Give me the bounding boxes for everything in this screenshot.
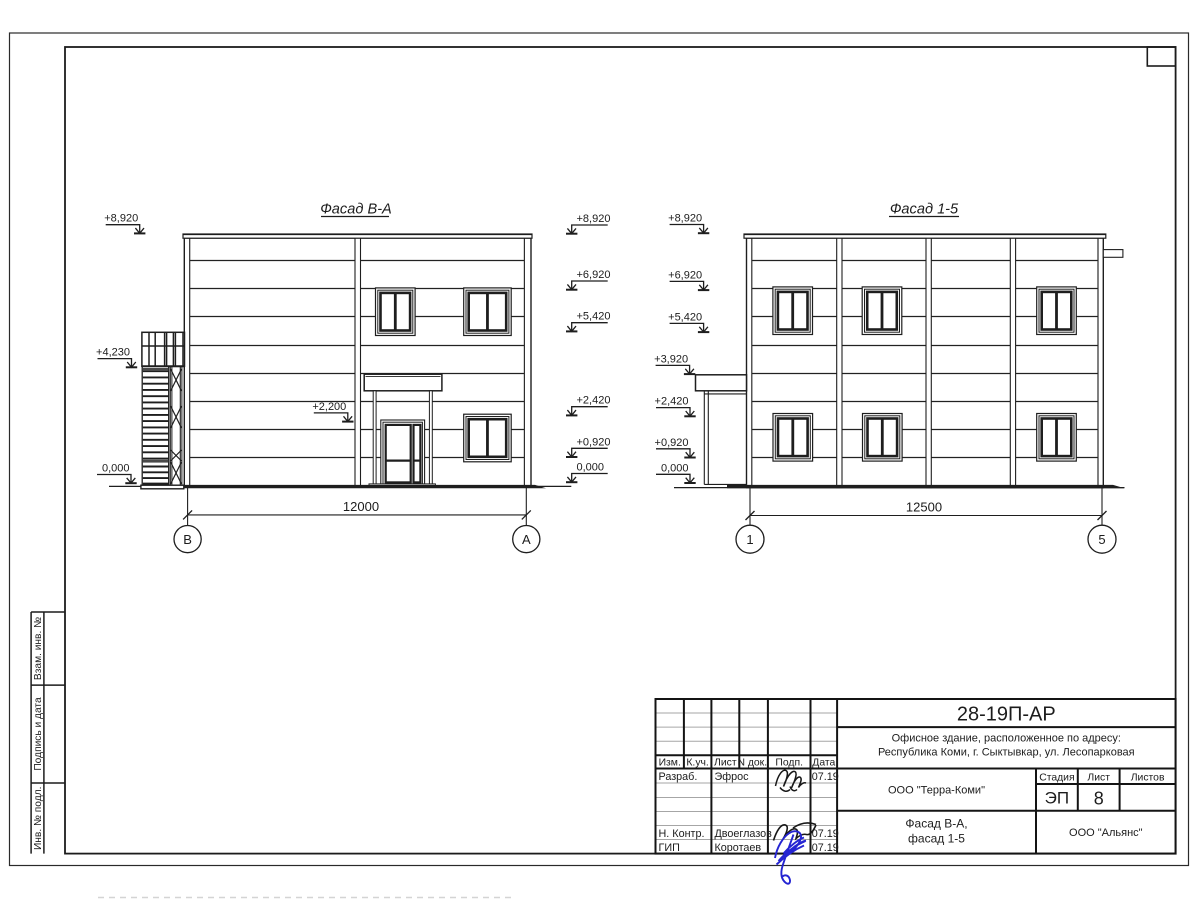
svg-text:Стадия: Стадия — [1039, 773, 1074, 784]
svg-text:+8,920: +8,920 — [668, 213, 702, 225]
svg-text:Лист: Лист — [714, 758, 737, 769]
svg-text:Лист: Лист — [1087, 773, 1110, 784]
svg-text:Коротаев: Коротаев — [715, 842, 762, 854]
svg-text:Фасад 1-5: Фасад 1-5 — [890, 202, 959, 218]
svg-text:ООО "Альянс": ООО "Альянс" — [1069, 827, 1143, 839]
svg-text:А: А — [522, 532, 531, 547]
svg-text:8: 8 — [1094, 789, 1104, 809]
svg-text:Инв. № подл.: Инв. № подл. — [33, 787, 44, 850]
svg-text:5: 5 — [1098, 532, 1105, 547]
svg-text:12500: 12500 — [906, 500, 942, 515]
svg-text:+0,920: +0,920 — [577, 436, 611, 448]
svg-text:+0,920: +0,920 — [655, 437, 689, 449]
svg-text:Подп.: Подп. — [775, 758, 803, 769]
svg-text:+6,920: +6,920 — [577, 269, 611, 281]
svg-text:+5,420: +5,420 — [577, 311, 611, 323]
svg-text:Республика Коми, г. Сыктывкар,: Республика Коми, г. Сыктывкар, ул. Лесоп… — [878, 747, 1135, 759]
svg-text:Подпись и дата: Подпись и дата — [33, 697, 44, 771]
svg-text:+4,230: +4,230 — [96, 347, 130, 359]
svg-text:0,000: 0,000 — [661, 462, 689, 474]
svg-text:0,000: 0,000 — [577, 462, 605, 474]
svg-text:К.уч.: К.уч. — [686, 758, 708, 769]
svg-text:+2,420: +2,420 — [655, 396, 689, 408]
svg-text:ООО "Терра-Коми": ООО "Терра-Коми" — [888, 785, 985, 797]
svg-text:0,000: 0,000 — [102, 463, 130, 475]
svg-text:ЭП: ЭП — [1045, 789, 1069, 808]
svg-text:1: 1 — [746, 532, 753, 547]
svg-text:Двоеглазов: Двоеглазов — [715, 828, 773, 840]
svg-text:ГИП: ГИП — [659, 842, 680, 854]
svg-text:Фасад В-А,: Фасад В-А, — [905, 817, 967, 831]
svg-text:07.19: 07.19 — [812, 771, 839, 783]
svg-text:+5,420: +5,420 — [668, 311, 702, 323]
svg-text:Изм.: Изм. — [659, 758, 681, 769]
svg-text:+2,200: +2,200 — [312, 401, 346, 413]
svg-text:Эфрос: Эфрос — [715, 771, 750, 783]
svg-text:В: В — [183, 532, 192, 547]
svg-text:+3,920: +3,920 — [654, 353, 688, 365]
svg-text:+8,920: +8,920 — [104, 213, 138, 225]
svg-text:Дата: Дата — [812, 758, 835, 769]
svg-text:Взам. инв. №: Взам. инв. № — [33, 617, 44, 680]
svg-text:фасад 1-5: фасад 1-5 — [908, 832, 965, 846]
svg-text:07.19: 07.19 — [812, 828, 839, 840]
svg-text:12000: 12000 — [343, 499, 379, 514]
svg-text:28-19П-АР: 28-19П-АР — [957, 704, 1056, 726]
svg-text:+6,920: +6,920 — [668, 269, 702, 281]
svg-text:07.19: 07.19 — [812, 842, 839, 854]
svg-text:Офисное здание, расположенное: Офисное здание, расположенное по адресу: — [892, 733, 1121, 745]
svg-text:+2,420: +2,420 — [577, 395, 611, 407]
svg-text:Листов: Листов — [1131, 773, 1165, 784]
svg-text:N док.: N док. — [737, 758, 767, 769]
svg-text:+8,920: +8,920 — [577, 213, 611, 225]
svg-text:Разраб.: Разраб. — [659, 771, 698, 783]
svg-text:Н. Контр.: Н. Контр. — [659, 828, 705, 840]
svg-text:Фасад В-А: Фасад В-А — [320, 202, 392, 218]
